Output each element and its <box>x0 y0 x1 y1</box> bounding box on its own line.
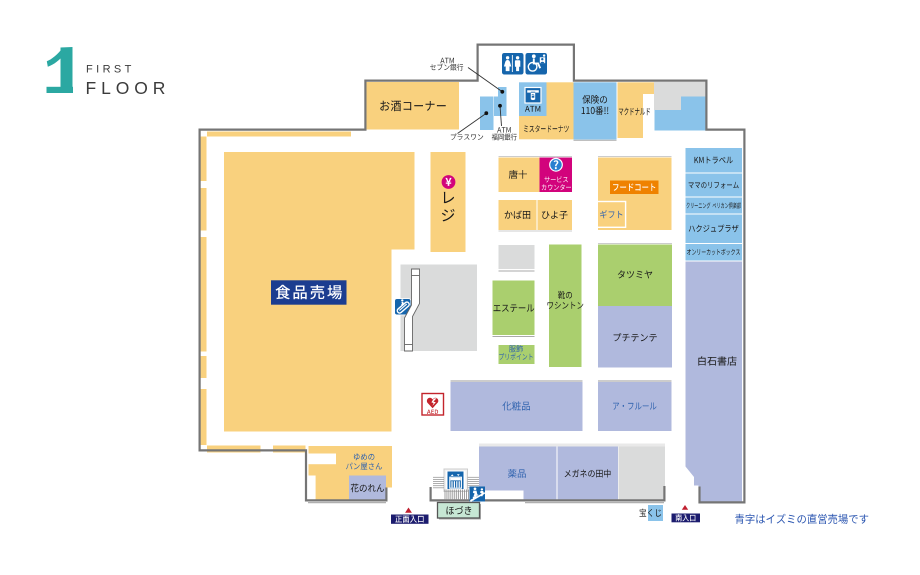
svg-text:FIRST: FIRST <box>86 63 135 75</box>
svg-text:FLOOR: FLOOR <box>86 78 171 98</box>
